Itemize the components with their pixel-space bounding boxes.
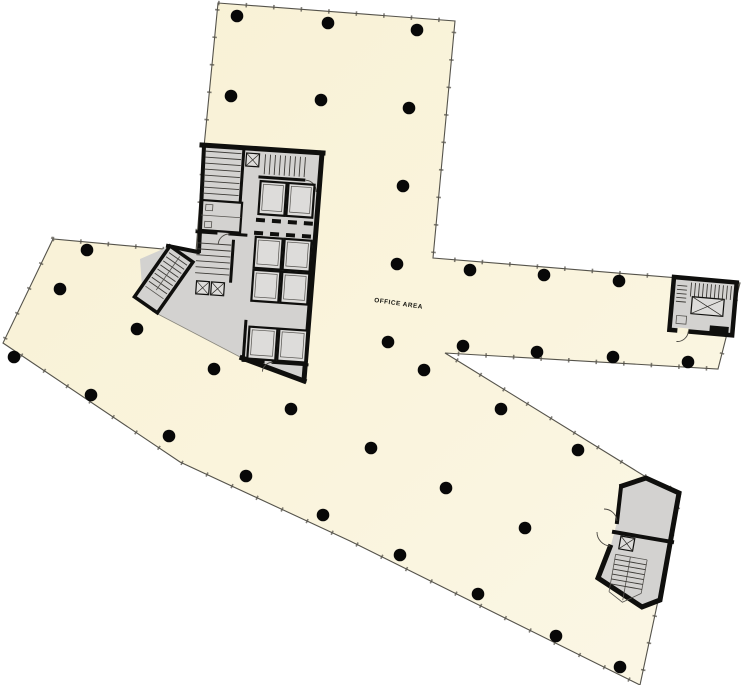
- shaft-box-top: [246, 153, 260, 167]
- column-dot: [538, 269, 551, 282]
- column-dot: [317, 509, 330, 522]
- column-dot: [397, 180, 410, 193]
- door-opening: [677, 330, 688, 331]
- column-dot: [285, 403, 298, 416]
- column-dot: [315, 94, 328, 107]
- column-dot: [614, 661, 627, 674]
- column-dot: [472, 588, 485, 601]
- column-dot: [440, 482, 453, 495]
- column-dot: [391, 258, 404, 271]
- column-dot: [8, 351, 21, 364]
- floor-plan: OFFICE AREA: [0, 0, 743, 685]
- column-dot: [365, 442, 378, 455]
- column-dot: [607, 351, 620, 364]
- column-dot: [85, 389, 98, 402]
- column-dot: [231, 10, 244, 23]
- floor-plan-svg: OFFICE AREA: [0, 0, 743, 685]
- column-dot: [550, 630, 563, 643]
- column-dot: [322, 17, 335, 30]
- column-dot: [411, 24, 424, 37]
- column-dot: [240, 470, 253, 483]
- column-dot: [531, 346, 544, 359]
- column-dot: [464, 264, 477, 277]
- column-dot: [225, 90, 238, 103]
- shaft-box-se: [619, 536, 635, 551]
- column-dot: [495, 403, 508, 416]
- column-dot: [418, 364, 431, 377]
- column-dot: [572, 444, 585, 457]
- column-dot: [208, 363, 221, 376]
- column-dot: [519, 522, 532, 535]
- column-dot: [613, 275, 626, 288]
- column-dot: [54, 283, 67, 296]
- column-dot: [131, 323, 144, 336]
- column-dot: [457, 340, 470, 353]
- column-dot: [382, 336, 395, 349]
- column-dot: [163, 430, 176, 443]
- column-dot: [394, 549, 407, 562]
- column-dot: [403, 102, 416, 115]
- column-dot: [682, 356, 695, 369]
- column-dot: [81, 244, 94, 257]
- elevator-bank-middle: [249, 233, 314, 305]
